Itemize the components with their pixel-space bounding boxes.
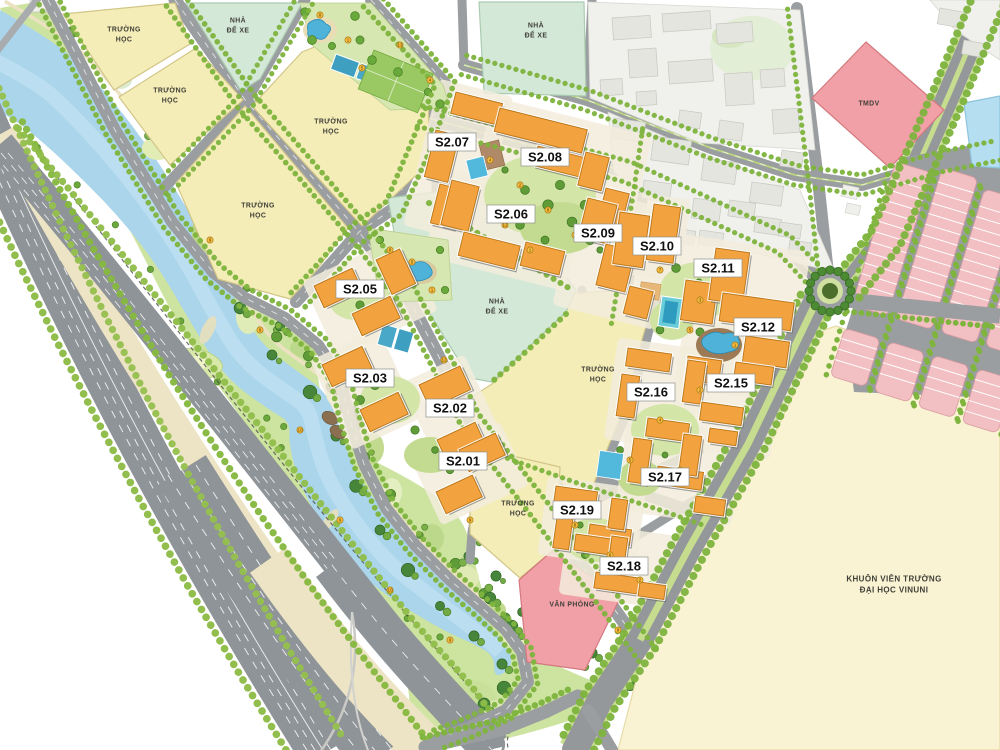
svg-text:3: 3 <box>699 298 702 303</box>
svg-text:4: 4 <box>429 78 432 83</box>
svg-text:S2.06: S2.06 <box>494 207 528 222</box>
svg-text:TRƯỜNG: TRƯỜNG <box>581 365 615 374</box>
svg-text:HỌC: HỌC <box>590 376 607 383</box>
svg-text:S2.02: S2.02 <box>433 401 467 416</box>
svg-text:8: 8 <box>547 208 550 213</box>
svg-text:2: 2 <box>639 578 642 583</box>
svg-text:VĂN PHÒNG: VĂN PHÒNG <box>549 600 594 609</box>
svg-text:TRƯỜNG: TRƯỜNG <box>153 86 187 95</box>
svg-text:9: 9 <box>617 628 620 633</box>
svg-text:5: 5 <box>411 260 414 265</box>
svg-text:NHÀ: NHÀ <box>230 16 246 25</box>
svg-text:4: 4 <box>489 158 492 163</box>
svg-text:2: 2 <box>699 388 702 393</box>
svg-text:S2.03: S2.03 <box>353 371 387 386</box>
svg-text:NHÀ: NHÀ <box>489 297 505 306</box>
svg-text:9: 9 <box>259 328 262 333</box>
svg-text:12: 12 <box>441 358 447 363</box>
svg-text:13: 13 <box>397 43 403 48</box>
svg-text:4: 4 <box>659 418 662 423</box>
svg-text:S2.07: S2.07 <box>435 135 469 150</box>
svg-text:S2.18: S2.18 <box>607 559 641 574</box>
svg-text:TRƯỜNG: TRƯỜNG <box>241 201 275 210</box>
svg-text:HỌC: HỌC <box>250 212 267 219</box>
svg-text:1: 1 <box>347 38 350 43</box>
svg-text:10: 10 <box>297 428 303 433</box>
svg-text:HỌC: HỌC <box>510 510 527 517</box>
svg-text:1: 1 <box>529 248 532 253</box>
svg-text:8: 8 <box>574 523 577 528</box>
svg-text:5: 5 <box>361 66 364 71</box>
svg-text:HỌC: HỌC <box>162 97 179 104</box>
svg-text:S2.01: S2.01 <box>446 454 480 469</box>
svg-text:S2.19: S2.19 <box>560 503 594 518</box>
svg-text:9: 9 <box>449 638 452 643</box>
svg-text:ĐỂ XE: ĐỂ XE <box>486 306 509 315</box>
svg-text:TRƯỜNG: TRƯỜNG <box>107 25 141 34</box>
svg-text:9: 9 <box>469 518 472 523</box>
svg-text:S2.10: S2.10 <box>640 239 674 254</box>
svg-text:10: 10 <box>387 588 393 593</box>
svg-text:TRƯỜNG: TRƯỜNG <box>314 117 348 126</box>
svg-text:S2.17: S2.17 <box>648 470 682 485</box>
svg-text:ĐẠI HỌC VINUNI: ĐẠI HỌC VINUNI <box>860 585 929 594</box>
svg-text:8: 8 <box>389 248 392 253</box>
svg-text:TMDV: TMDV <box>858 101 879 108</box>
svg-text:TRƯỜNG: TRƯỜNG <box>501 499 535 508</box>
svg-text:5: 5 <box>629 458 632 463</box>
svg-text:ĐỂ XE: ĐỂ XE <box>525 30 548 39</box>
svg-text:12: 12 <box>502 223 508 228</box>
svg-text:HỌC: HỌC <box>323 128 340 135</box>
svg-text:S2.11: S2.11 <box>701 261 734 276</box>
svg-text:S2.12: S2.12 <box>741 320 775 335</box>
svg-text:S2.09: S2.09 <box>581 226 615 241</box>
svg-text:S2.16: S2.16 <box>634 385 668 400</box>
svg-text:NHÀ: NHÀ <box>528 21 544 30</box>
svg-text:8: 8 <box>319 13 322 18</box>
svg-text:ĐỂ XE: ĐỂ XE <box>227 25 250 34</box>
svg-text:S2.15: S2.15 <box>714 376 748 391</box>
svg-text:S2.08: S2.08 <box>528 150 562 165</box>
svg-text:9: 9 <box>339 518 342 523</box>
svg-text:1: 1 <box>431 288 434 293</box>
svg-text:9: 9 <box>209 238 212 243</box>
svg-text:HỌC: HỌC <box>116 36 133 43</box>
svg-text:7: 7 <box>659 268 662 273</box>
svg-text:2: 2 <box>519 183 522 188</box>
svg-text:KHUÔN VIÊN TRƯỜNG: KHUÔN VIÊN TRƯỜNG <box>846 575 941 584</box>
svg-text:5: 5 <box>689 328 692 333</box>
svg-text:S2.05: S2.05 <box>343 282 377 297</box>
svg-text:1: 1 <box>734 343 737 348</box>
